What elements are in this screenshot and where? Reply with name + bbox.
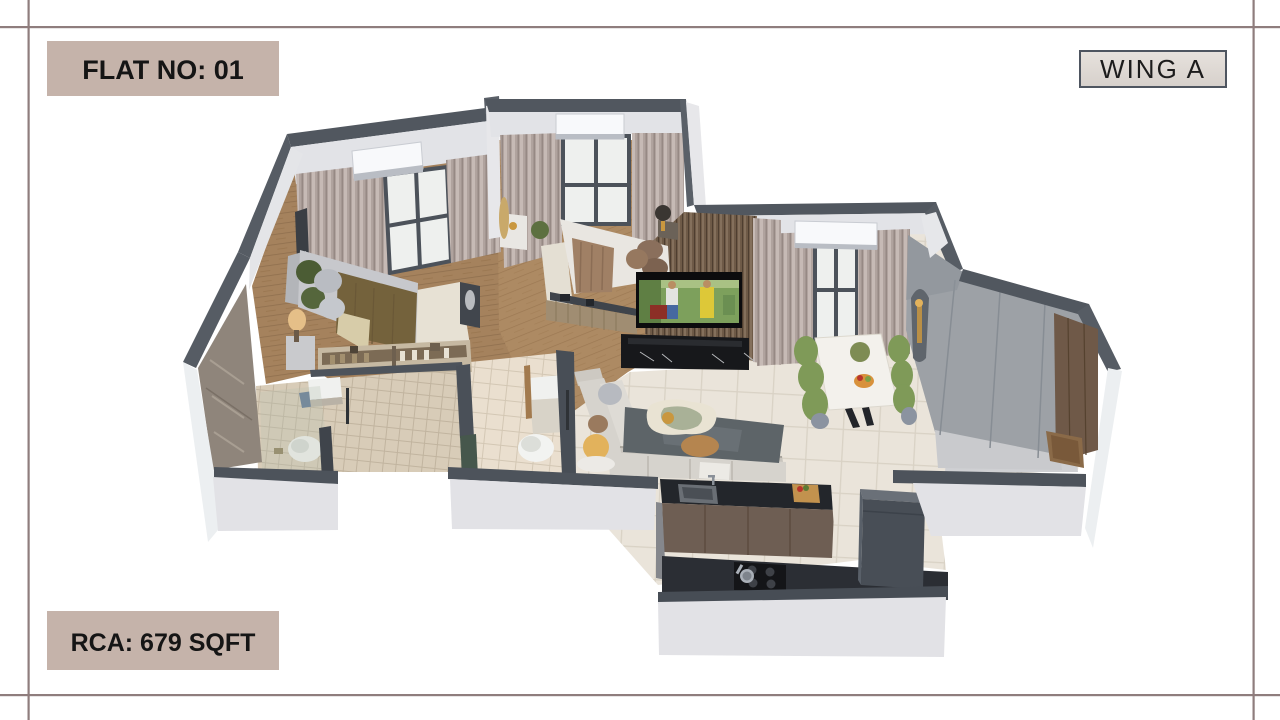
svg-text:WING A: WING A bbox=[1100, 54, 1206, 84]
svg-text:RCA: 679 SQFT: RCA: 679 SQFT bbox=[71, 629, 256, 657]
svg-text:FLAT NO: 01: FLAT NO: 01 bbox=[82, 55, 244, 85]
